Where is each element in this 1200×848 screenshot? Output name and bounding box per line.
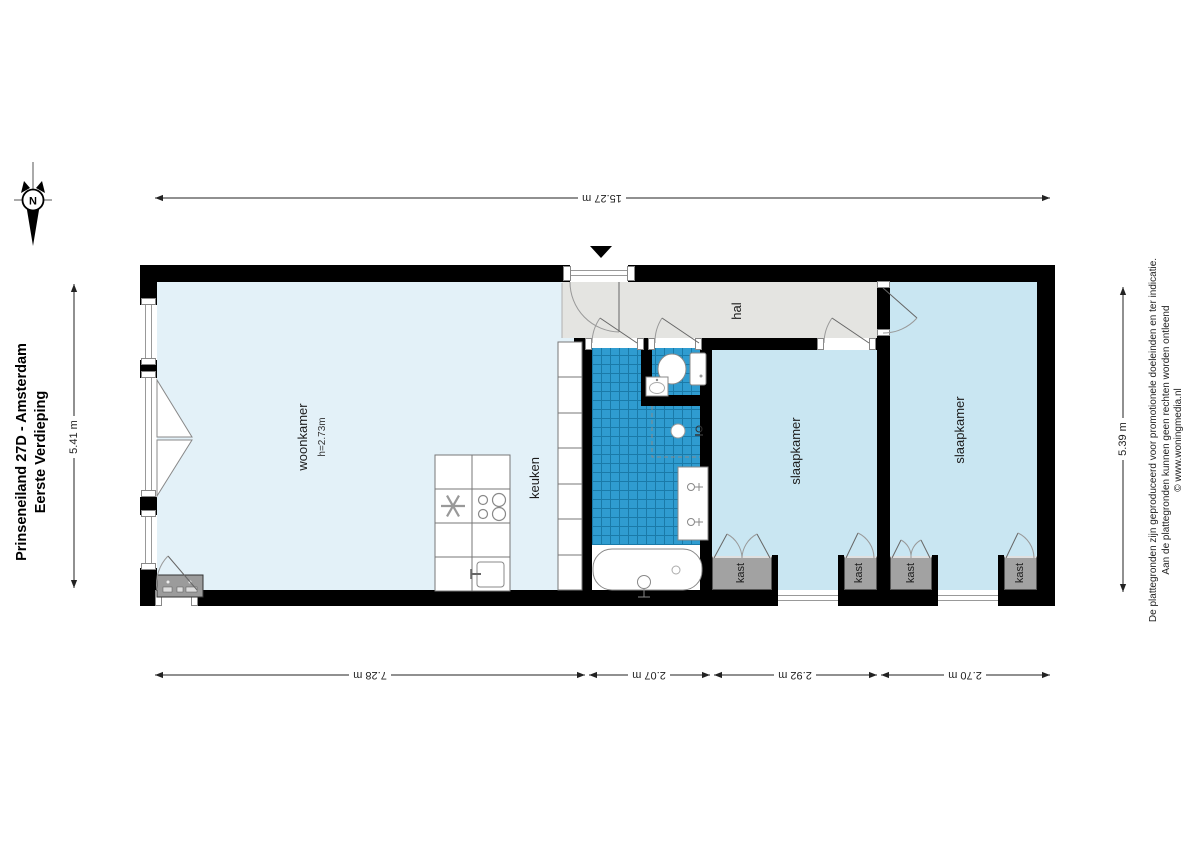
dimension-bottom-3: 2.92 m	[765, 668, 825, 682]
door-jamb	[585, 338, 592, 350]
disclaimer-text: De plattegronden zijn geproduceerd voor …	[1148, 160, 1188, 720]
disclaimer-line1: De plattegronden zijn geproduceerd voor …	[1148, 160, 1161, 720]
svg-text:N: N	[29, 196, 37, 208]
door-jamb	[869, 338, 876, 350]
window-left-upper	[141, 305, 156, 360]
floorplan-page: N woonkamer h=2.73m keuken hal slaapkame…	[0, 0, 1200, 848]
dimension-top: 15.27 m	[567, 191, 637, 205]
french-door-frame	[141, 378, 156, 497]
door-jamb	[877, 281, 890, 288]
dimension-bottom-1: 7.28 m	[340, 668, 400, 682]
window-jamb	[141, 371, 156, 378]
window-slaapkamer1	[778, 591, 838, 605]
window-jamb	[141, 563, 156, 570]
door-jamb	[817, 338, 824, 350]
wall-toilet-alcove-h	[641, 395, 712, 406]
wall-bottom-1	[197, 590, 778, 606]
room-label-keuken: keuken	[525, 438, 543, 518]
disclaimer-line3: © www.woningmedia.nl	[1173, 160, 1186, 720]
room-label-woonkamer-height: h=2.73m	[316, 407, 328, 467]
room-label-slaapkamer1: slaapkamer	[786, 396, 804, 506]
wall-hal-3	[695, 338, 824, 350]
door-jamb	[695, 338, 702, 350]
door-jamb	[191, 590, 198, 606]
compass-north-icon: N	[14, 162, 52, 246]
door-jamb	[627, 266, 635, 281]
bathtub-area-floor	[592, 545, 700, 590]
dimension-left: 5.41 m	[67, 407, 81, 467]
window-left-lower	[141, 515, 156, 568]
wall-kast-stub-2	[838, 555, 844, 590]
room-label-woonkamer: woonkamer	[293, 377, 311, 497]
room-hal-floor	[562, 282, 877, 338]
room-label-slaapkamer2: slaapkamer	[950, 375, 968, 485]
door-jamb	[877, 329, 890, 336]
page-title-line1: Prinseneiland 27D - Amsterdam	[13, 287, 32, 617]
wall-kast-stub-4	[998, 555, 1004, 590]
door-jamb	[637, 338, 644, 350]
wall-keuken-badkamer	[580, 340, 592, 590]
disclaimer-line2: Aan de plattegronden kunnen geen rechten…	[1161, 160, 1174, 720]
room-label-kast4: kast	[1013, 553, 1027, 593]
entrance-marker-icon	[590, 246, 612, 258]
room-woonkamer-floor	[157, 282, 580, 590]
room-label-kast1: kast	[734, 553, 748, 593]
dimension-bottom-4: 2.70 m	[935, 668, 995, 682]
window-jamb	[141, 490, 156, 497]
wall-top-left	[140, 265, 570, 282]
wall-kast-stub-3	[932, 555, 938, 590]
dimension-bottom-2: 2.07 m	[619, 668, 679, 682]
window-jamb	[141, 510, 156, 517]
wall-top-right	[628, 265, 1055, 282]
wall-badkamer-slaapkamer1	[700, 340, 712, 590]
wall-right	[1037, 265, 1055, 606]
door-jamb	[563, 266, 571, 281]
entrance-door-frame	[570, 266, 628, 281]
room-label-hal: hal	[728, 281, 744, 341]
dimension-right: 5.39 m	[1116, 409, 1130, 469]
room-label-kast3: kast	[904, 553, 918, 593]
window-slaapkamer2	[938, 591, 998, 605]
door-jamb	[648, 338, 655, 350]
page-title: Prinseneiland 27D - Amsterdam Eerste Ver…	[13, 287, 53, 617]
page-title-line2: Eerste Verdieping	[32, 287, 51, 617]
wall-kast-stub-1	[772, 555, 778, 590]
door-jamb	[155, 590, 162, 606]
window-jamb	[141, 298, 156, 305]
window-jamb	[141, 358, 156, 365]
room-label-kast2: kast	[852, 553, 866, 593]
